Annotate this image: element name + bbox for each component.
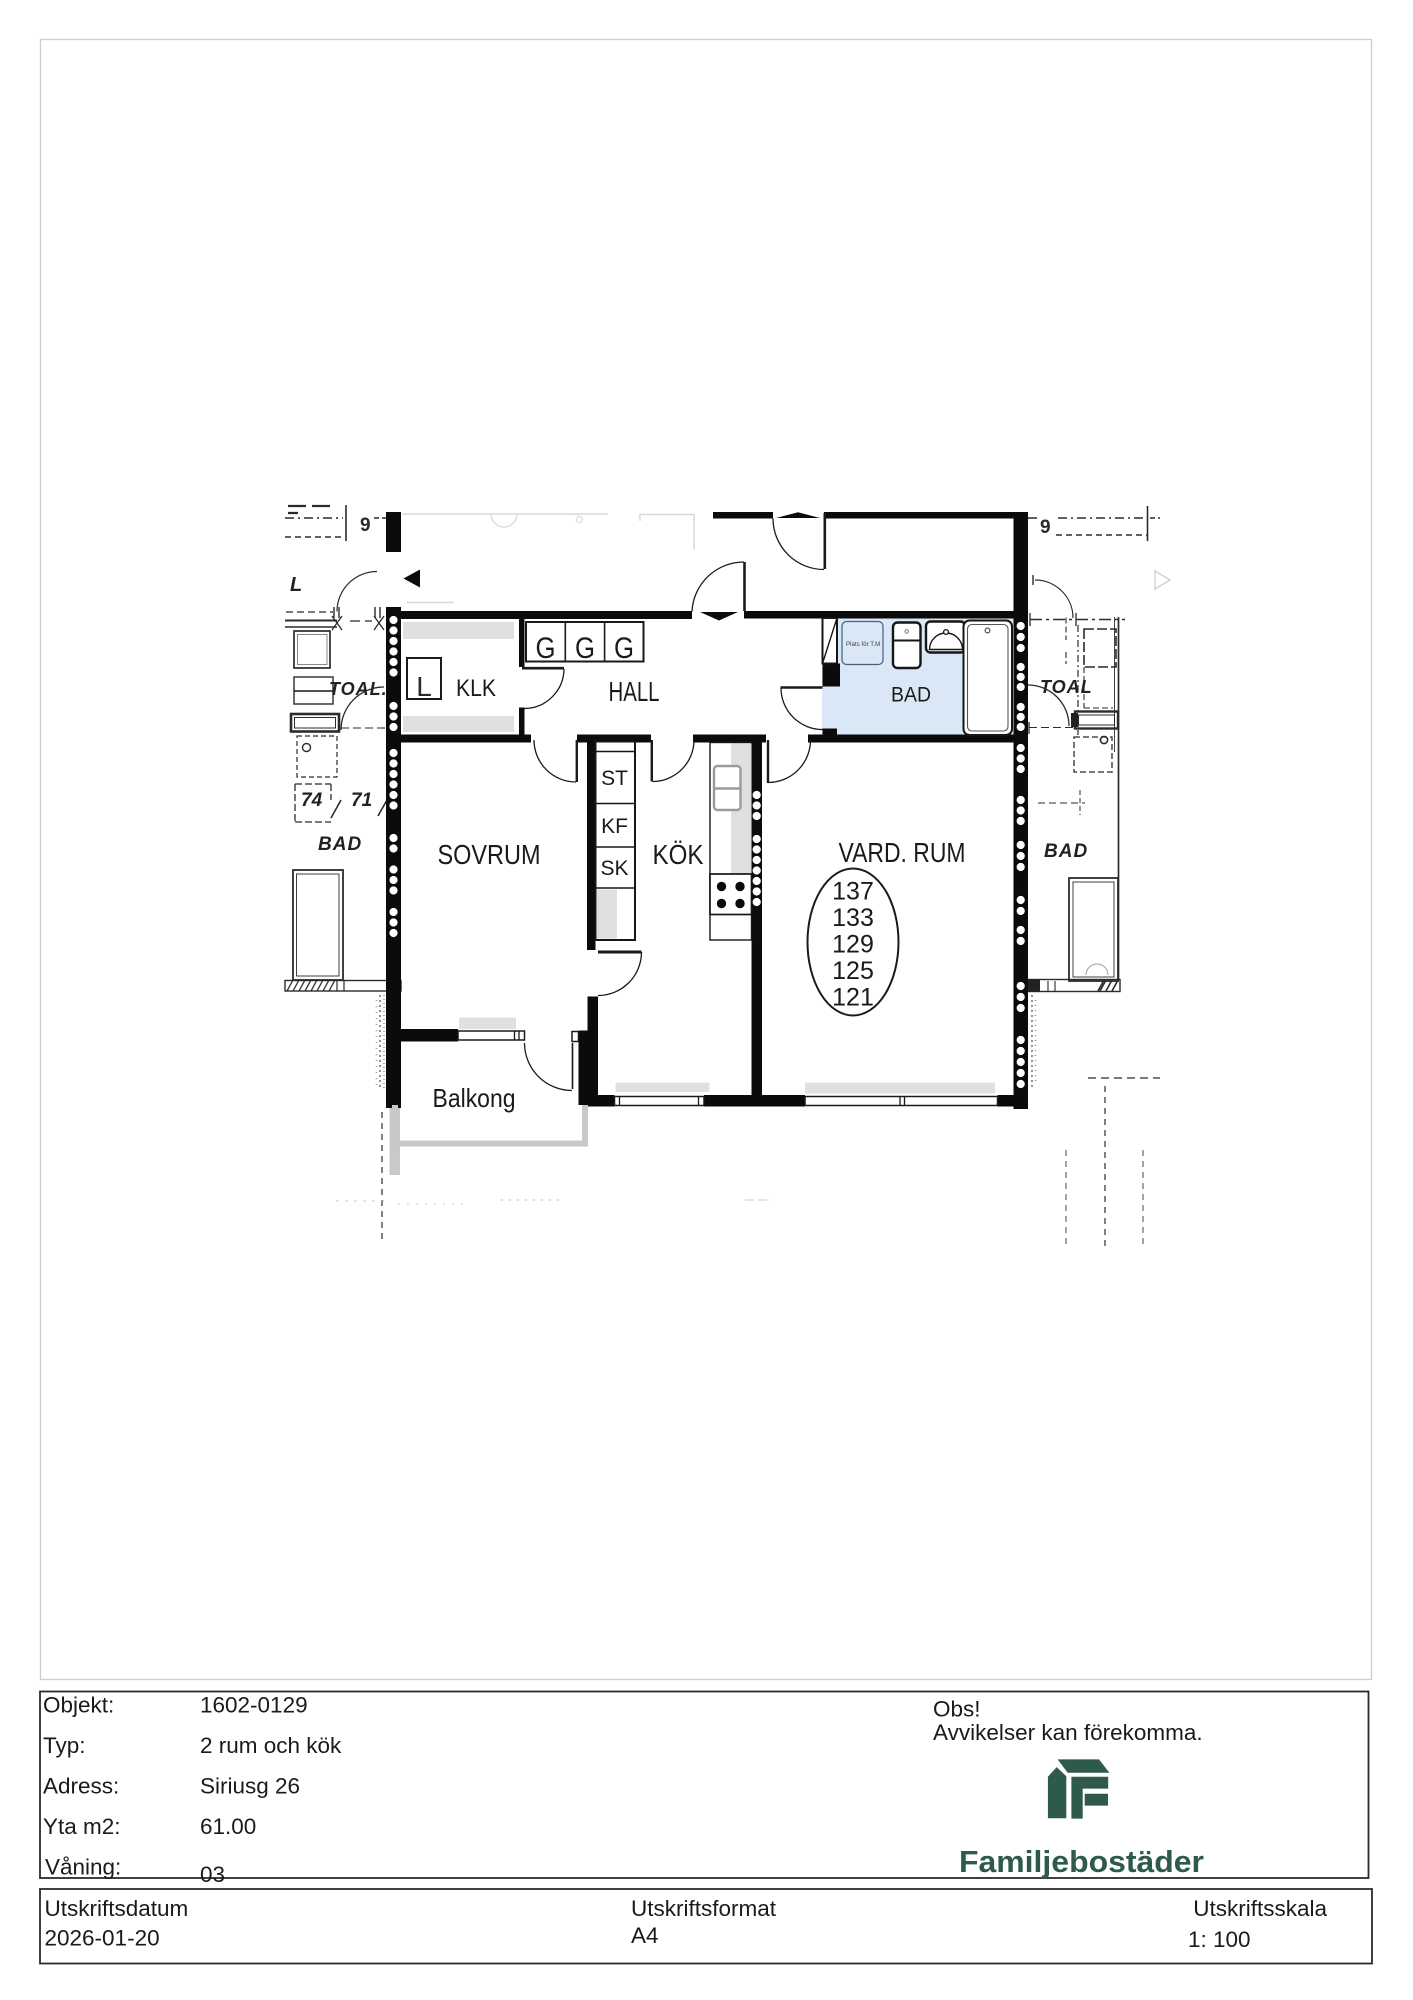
svg-text:133: 133 <box>832 904 874 932</box>
svg-text:9: 9 <box>360 515 371 536</box>
svg-text:Utskriftsdatum: Utskriftsdatum <box>45 1896 189 1921</box>
svg-text:SOVRUM: SOVRUM <box>438 839 541 870</box>
svg-text:HALL: HALL <box>609 676 660 707</box>
svg-text:Familjebostäder: Familjebostäder <box>959 1844 1204 1879</box>
svg-text:A4: A4 <box>631 1923 659 1948</box>
svg-text:Avvikelser kan förekomma.: Avvikelser kan förekomma. <box>933 1720 1203 1745</box>
svg-text:TOAL: TOAL <box>1040 677 1093 697</box>
svg-text:Yta m2:: Yta m2: <box>43 1814 121 1839</box>
svg-text:61.00: 61.00 <box>200 1814 256 1839</box>
svg-text:Utskriftsformat: Utskriftsformat <box>631 1896 777 1921</box>
svg-text:Objekt:: Objekt: <box>43 1693 114 1718</box>
svg-text:G: G <box>575 632 595 665</box>
svg-text:ST: ST <box>601 767 628 790</box>
svg-text:03: 03 <box>200 1862 225 1887</box>
svg-text:G: G <box>614 632 634 665</box>
svg-text:121: 121 <box>832 984 874 1012</box>
svg-text:2 rum och kök: 2 rum och kök <box>200 1733 342 1758</box>
svg-text:Obs!: Obs! <box>933 1697 981 1722</box>
svg-text:BAD: BAD <box>891 683 931 707</box>
svg-text:137: 137 <box>832 878 874 906</box>
svg-text:71: 71 <box>351 790 372 811</box>
svg-text:G: G <box>536 632 556 665</box>
svg-text:Typ:: Typ: <box>43 1733 86 1758</box>
svg-text:125: 125 <box>832 957 874 985</box>
svg-text:9: 9 <box>1040 517 1051 538</box>
svg-text:KÖK: KÖK <box>653 839 704 870</box>
svg-text:BAD: BAD <box>318 834 362 855</box>
svg-text:Plats för T.M: Plats för T.M <box>846 641 880 648</box>
svg-text:L: L <box>416 671 432 702</box>
svg-text:129: 129 <box>832 931 874 959</box>
svg-text:KLK: KLK <box>456 675 496 702</box>
svg-text:VARD. RUM: VARD. RUM <box>839 837 966 868</box>
svg-text:1602-0129: 1602-0129 <box>200 1693 308 1718</box>
svg-text:1: 100: 1: 100 <box>1188 1927 1251 1952</box>
svg-text:Utskriftsskala: Utskriftsskala <box>1193 1896 1327 1921</box>
svg-text:Våning:: Våning: <box>45 1855 121 1880</box>
svg-text:74: 74 <box>301 790 323 811</box>
svg-text:SK: SK <box>600 857 628 880</box>
svg-text:Adress:: Adress: <box>43 1774 119 1799</box>
svg-text:Balkong: Balkong <box>433 1083 516 1113</box>
svg-text:2026-01-20: 2026-01-20 <box>45 1926 160 1951</box>
svg-text:BAD: BAD <box>1044 841 1088 862</box>
svg-text:Siriusg 26: Siriusg 26 <box>200 1774 300 1799</box>
svg-text:L: L <box>290 574 302 596</box>
svg-text:KF: KF <box>601 815 628 838</box>
